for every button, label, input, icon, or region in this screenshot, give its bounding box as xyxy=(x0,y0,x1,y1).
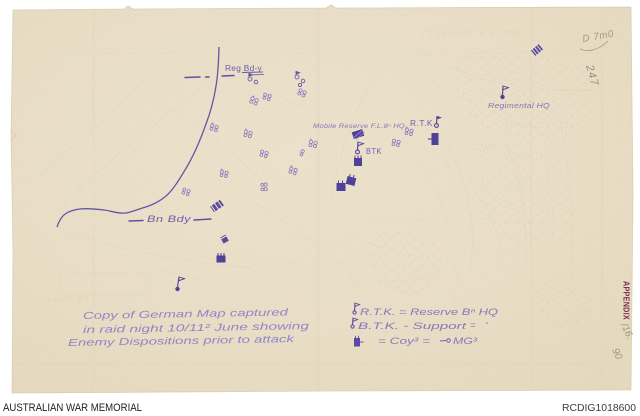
svg-text:Lauret Wd: Lauret Wd xyxy=(48,296,89,303)
svg-text:RCDIG1018600: RCDIG1018600 xyxy=(562,402,636,414)
svg-text:APPENDIX: APPENDIX xyxy=(622,281,632,320)
svg-text:B.T.K. - Support: B.T.K. - Support xyxy=(358,321,467,332)
svg-text:Regimental HQ: Regimental HQ xyxy=(488,101,550,110)
svg-text:AUSTRALIAN WAR MEMORIAL: AUSTRALIAN WAR MEMORIAL xyxy=(3,402,142,414)
svg-text:MG³: MG³ xyxy=(453,336,478,347)
svg-text:BTK: BTK xyxy=(366,147,382,156)
svg-text:I?34M0T K3?NE: I?34M0T K3?NE xyxy=(422,28,521,39)
svg-text:= Coy³ =: = Coy³ = xyxy=(378,336,431,347)
svg-text:Mobile Reserve F.L.8ⁿ HQ: Mobile Reserve F.L.8ⁿ HQ xyxy=(313,123,405,130)
svg-text:Bn Bdy: Bn Bdy xyxy=(147,214,192,225)
svg-text:R.T.K: R.T.K xyxy=(410,119,433,128)
svg-text:=: = xyxy=(470,320,476,331)
svg-text:Reg Bd-y: Reg Bd-y xyxy=(225,63,262,73)
svg-text:R.T.K. = Reserve Bⁿ HQ: R.T.K. = Reserve Bⁿ HQ xyxy=(360,307,499,318)
